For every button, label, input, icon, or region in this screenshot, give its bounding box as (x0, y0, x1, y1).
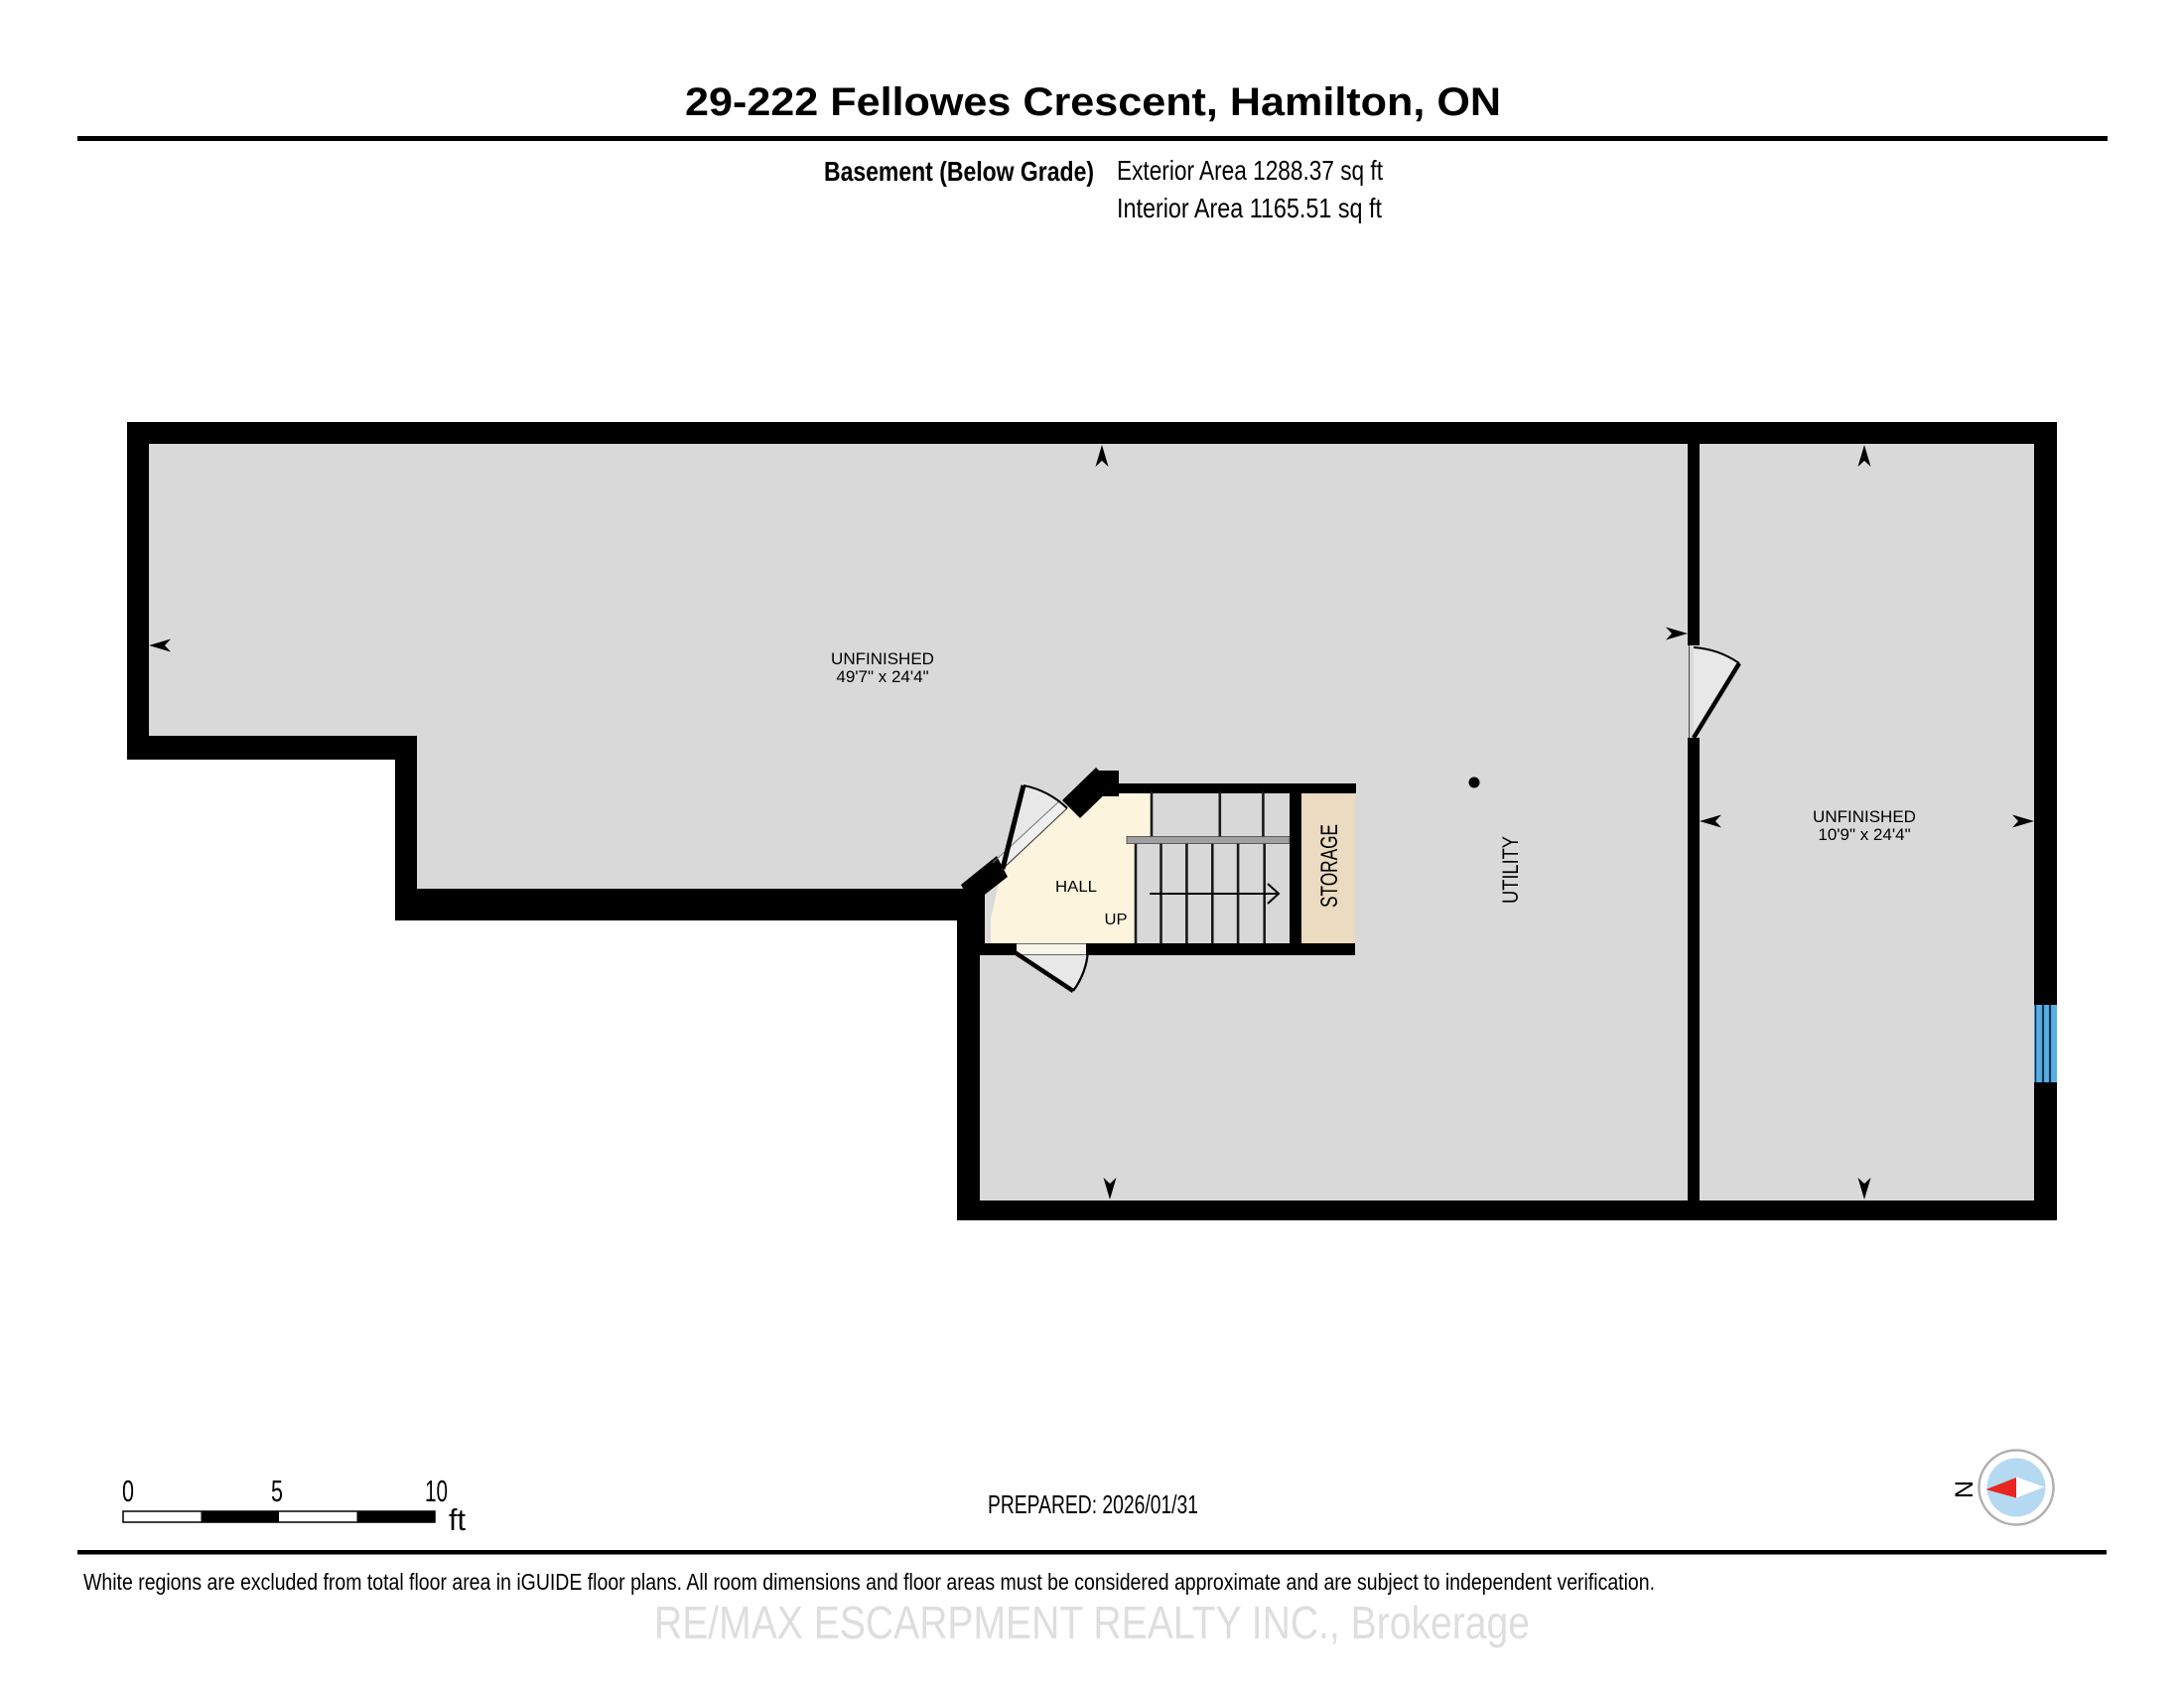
svg-text:ft: ft (449, 1502, 466, 1537)
svg-text:UP: UP (1105, 912, 1128, 928)
svg-text:STORAGE: STORAGE (1316, 824, 1343, 908)
svg-text:5: 5 (271, 1474, 283, 1508)
svg-text:Basement (Below Grade): Basement (Below Grade) (824, 156, 1094, 187)
svg-text:10: 10 (425, 1474, 448, 1508)
svg-text:UNFINISHED: UNFINISHED (1813, 807, 1916, 826)
svg-text:RE/MAX ESCARPMENT REALTY INC.,: RE/MAX ESCARPMENT REALTY INC., Brokerage (654, 1597, 1530, 1648)
svg-text:UNFINISHED: UNFINISHED (831, 649, 934, 668)
svg-text:49'7" x 24'4": 49'7" x 24'4" (836, 667, 928, 686)
svg-text:Interior Area 1165.51 sq ft: Interior Area 1165.51 sq ft (1117, 193, 1382, 223)
svg-text:PREPARED: 2026/01/31: PREPARED: 2026/01/31 (988, 1489, 1198, 1519)
svg-text:N: N (1951, 1481, 1979, 1498)
svg-text:UTILITY: UTILITY (1498, 836, 1523, 904)
svg-text:29-222 Fellowes Crescent, Hami: 29-222 Fellowes Crescent, Hamilton, ON (685, 80, 1501, 124)
svg-text:Exterior Area 1288.37 sq ft: Exterior Area 1288.37 sq ft (1117, 155, 1383, 186)
svg-text:0: 0 (122, 1474, 134, 1508)
svg-text:White regions are excluded fro: White regions are excluded from total fl… (83, 1569, 1655, 1595)
svg-text:HALL: HALL (1055, 879, 1097, 896)
svg-text:10'9" x 24'4": 10'9" x 24'4" (1818, 825, 1910, 844)
